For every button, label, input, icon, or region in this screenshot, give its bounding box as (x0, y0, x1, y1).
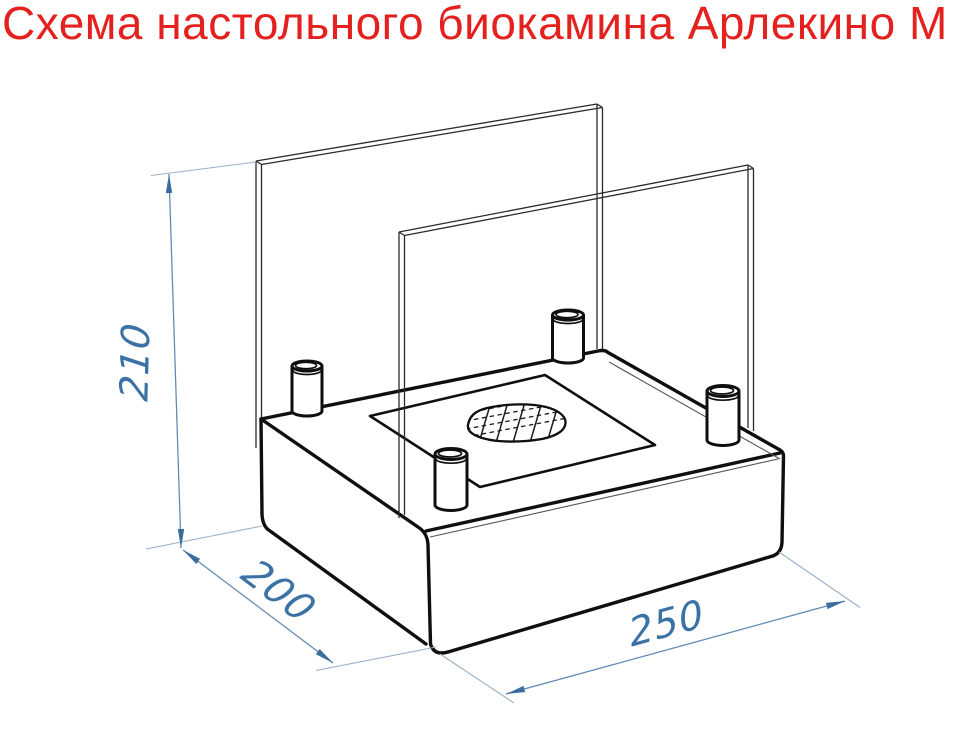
diagram-page: Схема настольного биокамина Арлекино М (0, 0, 970, 742)
glass-holder-cylinder-2 (553, 310, 584, 363)
technical-drawing: 210 200 250 (0, 0, 970, 742)
dimension-height-label: 210 (113, 320, 160, 403)
dimension-width-label: 250 (626, 592, 708, 657)
dimension-depth: 200 (183, 550, 436, 671)
glass-holder-cylinder-3 (707, 386, 739, 446)
glass-holder-cylinder-1 (292, 361, 322, 416)
dimension-height: 210 (113, 162, 262, 549)
glass-holder-cylinder-4 (435, 449, 467, 511)
base-body (261, 351, 784, 654)
dimension-depth-label: 200 (232, 552, 325, 632)
